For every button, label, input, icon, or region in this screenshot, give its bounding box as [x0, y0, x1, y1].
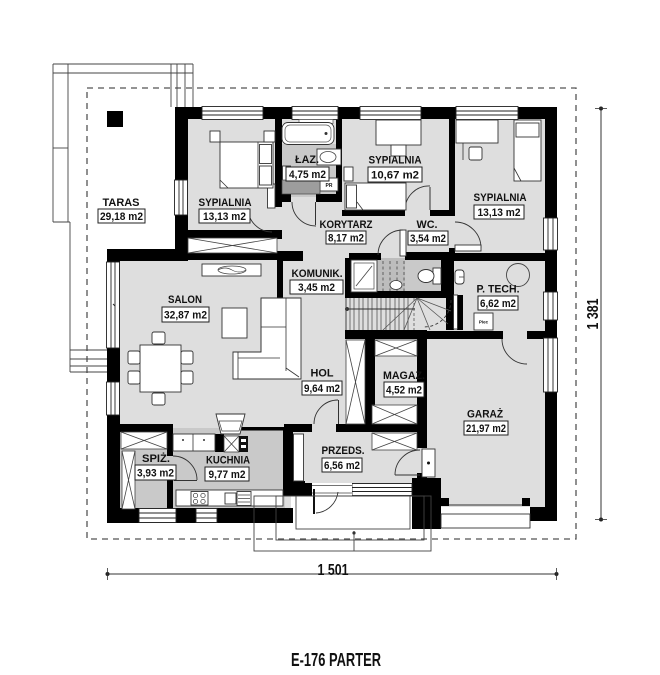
svg-text:P. TECH.: P. TECH. [477, 284, 520, 296]
svg-text:SPIŻ.: SPIŻ. [142, 452, 170, 465]
svg-text:13,13 m2: 13,13 m2 [478, 207, 521, 219]
svg-text:SYPIALNIA: SYPIALNIA [474, 192, 527, 204]
svg-text:32,87 m2: 32,87 m2 [164, 310, 207, 322]
svg-text:ŁAZ.: ŁAZ. [295, 154, 319, 166]
svg-text:4,75 m2: 4,75 m2 [289, 169, 326, 181]
svg-text:TARAS: TARAS [103, 197, 140, 209]
svg-text:4,52 m2: 4,52 m2 [386, 385, 422, 397]
svg-text:MAGAZ.: MAGAZ. [383, 370, 425, 382]
svg-text:6,62 m2: 6,62 m2 [480, 298, 516, 310]
svg-text:SYPIALNIA: SYPIALNIA [369, 155, 422, 167]
svg-text:KUCHNIA: KUCHNIA [206, 455, 250, 467]
svg-text:3,45 m2: 3,45 m2 [298, 282, 335, 294]
svg-text:21,97 m2: 21,97 m2 [466, 423, 506, 435]
svg-text:WC.: WC. [417, 219, 438, 231]
svg-text:13,13 m2: 13,13 m2 [203, 211, 246, 223]
svg-text:6,56 m2: 6,56 m2 [324, 460, 360, 472]
svg-text:8,17 m2: 8,17 m2 [328, 233, 364, 245]
svg-text:10,67 m2: 10,67 m2 [371, 170, 419, 182]
svg-text:Piec: Piec [479, 320, 489, 325]
svg-text:9,64 m2: 9,64 m2 [304, 383, 340, 395]
svg-text:SALON: SALON [168, 294, 202, 306]
svg-text:PR: PR [326, 183, 333, 189]
svg-text:SYPIALNIA: SYPIALNIA [199, 197, 252, 209]
svg-text:GARAŻ: GARAŻ [467, 408, 503, 421]
svg-text:29,18 m2: 29,18 m2 [100, 211, 143, 223]
svg-text:1 501: 1 501 [318, 562, 349, 579]
svg-text:1 381: 1 381 [585, 298, 602, 329]
svg-text:3,54 m2: 3,54 m2 [410, 233, 446, 245]
svg-text:3,93 m2: 3,93 m2 [137, 468, 174, 480]
svg-text:KOMUNIK.: KOMUNIK. [292, 268, 343, 280]
svg-text:9,77 m2: 9,77 m2 [209, 469, 246, 481]
svg-text:KORYTARZ: KORYTARZ [320, 219, 373, 231]
svg-text:PRZEDS.: PRZEDS. [322, 445, 365, 457]
svg-text:E-176 PARTER: E-176 PARTER [291, 650, 381, 670]
svg-text:HOL: HOL [311, 368, 334, 380]
